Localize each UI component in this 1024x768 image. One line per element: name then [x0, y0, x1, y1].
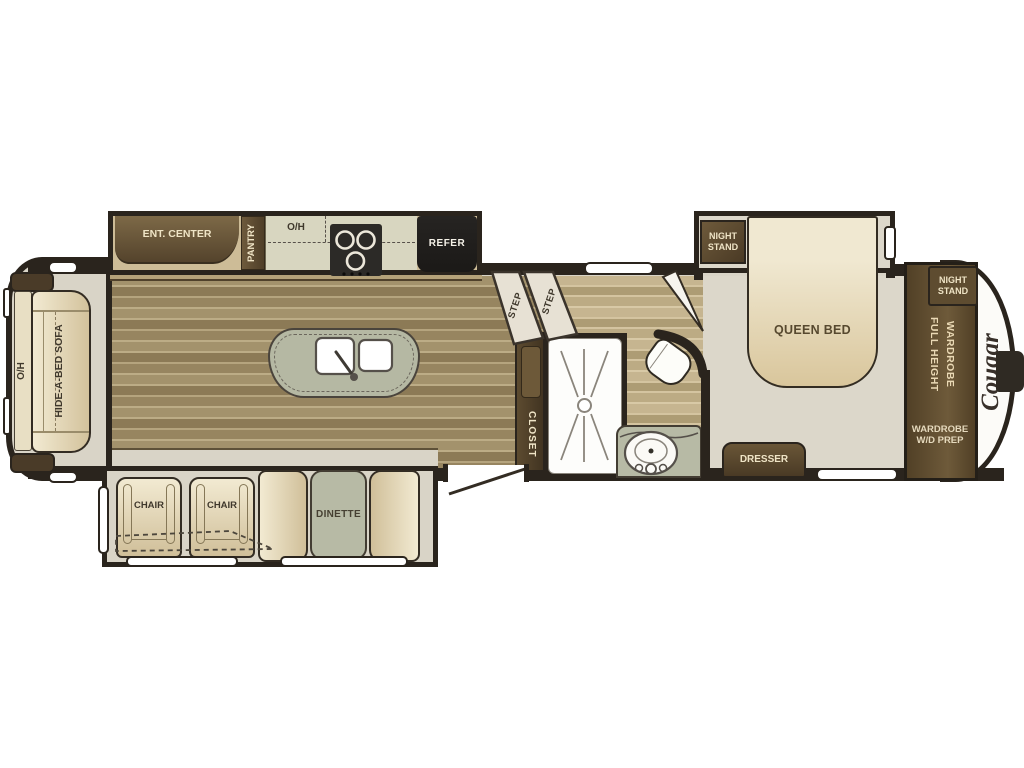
sofa-label: HIDE-A-BED SOFA — [53, 296, 69, 446]
dinette-bench-left — [258, 470, 308, 562]
night-stand-slide: NIGHT STAND — [700, 220, 746, 264]
ent-center: ENT. CENTER — [115, 216, 239, 264]
refer-label: REFER — [429, 238, 465, 250]
bath-bedroom-wall — [701, 370, 710, 478]
toilet-tank-line — [649, 344, 667, 369]
entry-door-gap — [446, 465, 524, 483]
chair-armrest — [123, 484, 132, 544]
kitchen-slideout: ENT. CENTER PANTRY O/H REFER — [108, 211, 482, 275]
chair-label: CHAIR — [191, 501, 253, 512]
dinette-label: DINETTE — [316, 509, 361, 521]
refrigerator: REFER — [417, 216, 477, 272]
overhead-dashed-v — [325, 216, 326, 242]
chair-right: CHAIR — [189, 477, 255, 558]
closet-label: CLOSET — [525, 402, 537, 466]
chair-seat-line — [132, 539, 166, 540]
corner-cabinet-bottom — [10, 453, 55, 473]
sofa-fold-line — [43, 312, 44, 431]
vanity-sink-icon — [618, 427, 700, 476]
overhead-left-label: O/H — [16, 351, 30, 391]
dinette-bench-right — [369, 470, 420, 562]
window — [126, 556, 238, 567]
shower — [543, 333, 627, 479]
shower-tray — [548, 338, 622, 474]
window — [3, 397, 11, 435]
kitchen-island — [268, 328, 420, 398]
queen-bed: QUEEN BED — [747, 216, 878, 388]
dinette-table: DINETTE — [310, 470, 367, 560]
chair-armrest — [196, 484, 205, 544]
island-sink-icon — [270, 330, 422, 400]
dresser: DRESSER — [722, 442, 806, 478]
night-stand-label: NIGHT STAND — [702, 231, 744, 253]
chair-seat-line — [205, 539, 239, 540]
closet-front — [521, 346, 541, 398]
window — [280, 556, 408, 567]
chair-label: CHAIR — [118, 501, 180, 512]
night-stand-label: NIGHT STAND — [930, 275, 976, 297]
wardrobe-wd-prep-label: WARDROBE W/D PREP — [908, 424, 972, 447]
floorplan: O/H HIDE-A-BED SOFA ENT. CENTER PANTRY O… — [0, 0, 1024, 768]
overhead-kitchen-label: O/H — [274, 222, 318, 234]
burner-icon — [330, 224, 382, 276]
slide-wall-stub-right — [886, 268, 895, 278]
cooktop — [330, 224, 382, 276]
window — [48, 471, 78, 483]
window — [48, 261, 78, 274]
slide-wall-stub-left — [694, 268, 703, 280]
chair-armrest — [166, 484, 175, 544]
window — [3, 288, 11, 318]
full-height-wardrobe-label: FULL HEIGHT WARDROBE — [926, 300, 970, 408]
shower-pattern-icon — [549, 339, 620, 472]
chair-armrest — [239, 484, 248, 544]
ent-center-label: ENT. CENTER — [115, 216, 239, 241]
corner-cabinet-top — [10, 272, 54, 292]
pantry-label: PANTRY — [246, 216, 260, 270]
window — [816, 468, 898, 481]
window — [584, 262, 654, 275]
queen-bed-label: QUEEN BED — [749, 323, 876, 337]
window — [98, 486, 109, 554]
window — [884, 226, 896, 260]
hitch-pin-box — [996, 351, 1024, 392]
dresser-label: DRESSER — [740, 454, 788, 466]
chair-left: CHAIR — [116, 477, 182, 558]
bath-vanity — [616, 425, 702, 478]
